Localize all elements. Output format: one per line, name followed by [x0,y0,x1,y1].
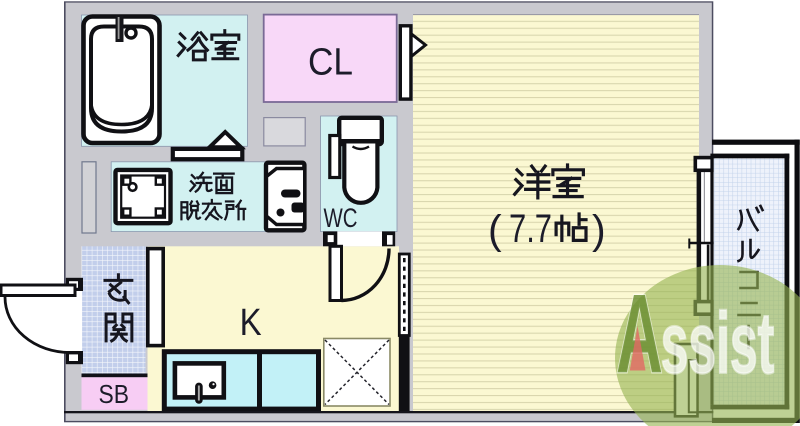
svg-text:SB: SB [99,379,130,409]
svg-text:7.7: 7.7 [509,207,552,251]
svg-text:WC: WC [324,203,358,233]
svg-text:A: A [616,272,663,397]
svg-text:CL: CL [308,42,353,84]
svg-text:ssist: ssist [661,294,775,391]
svg-text:K: K [240,302,262,344]
svg-text:): ) [592,207,606,253]
svg-text:(: ( [488,207,502,253]
